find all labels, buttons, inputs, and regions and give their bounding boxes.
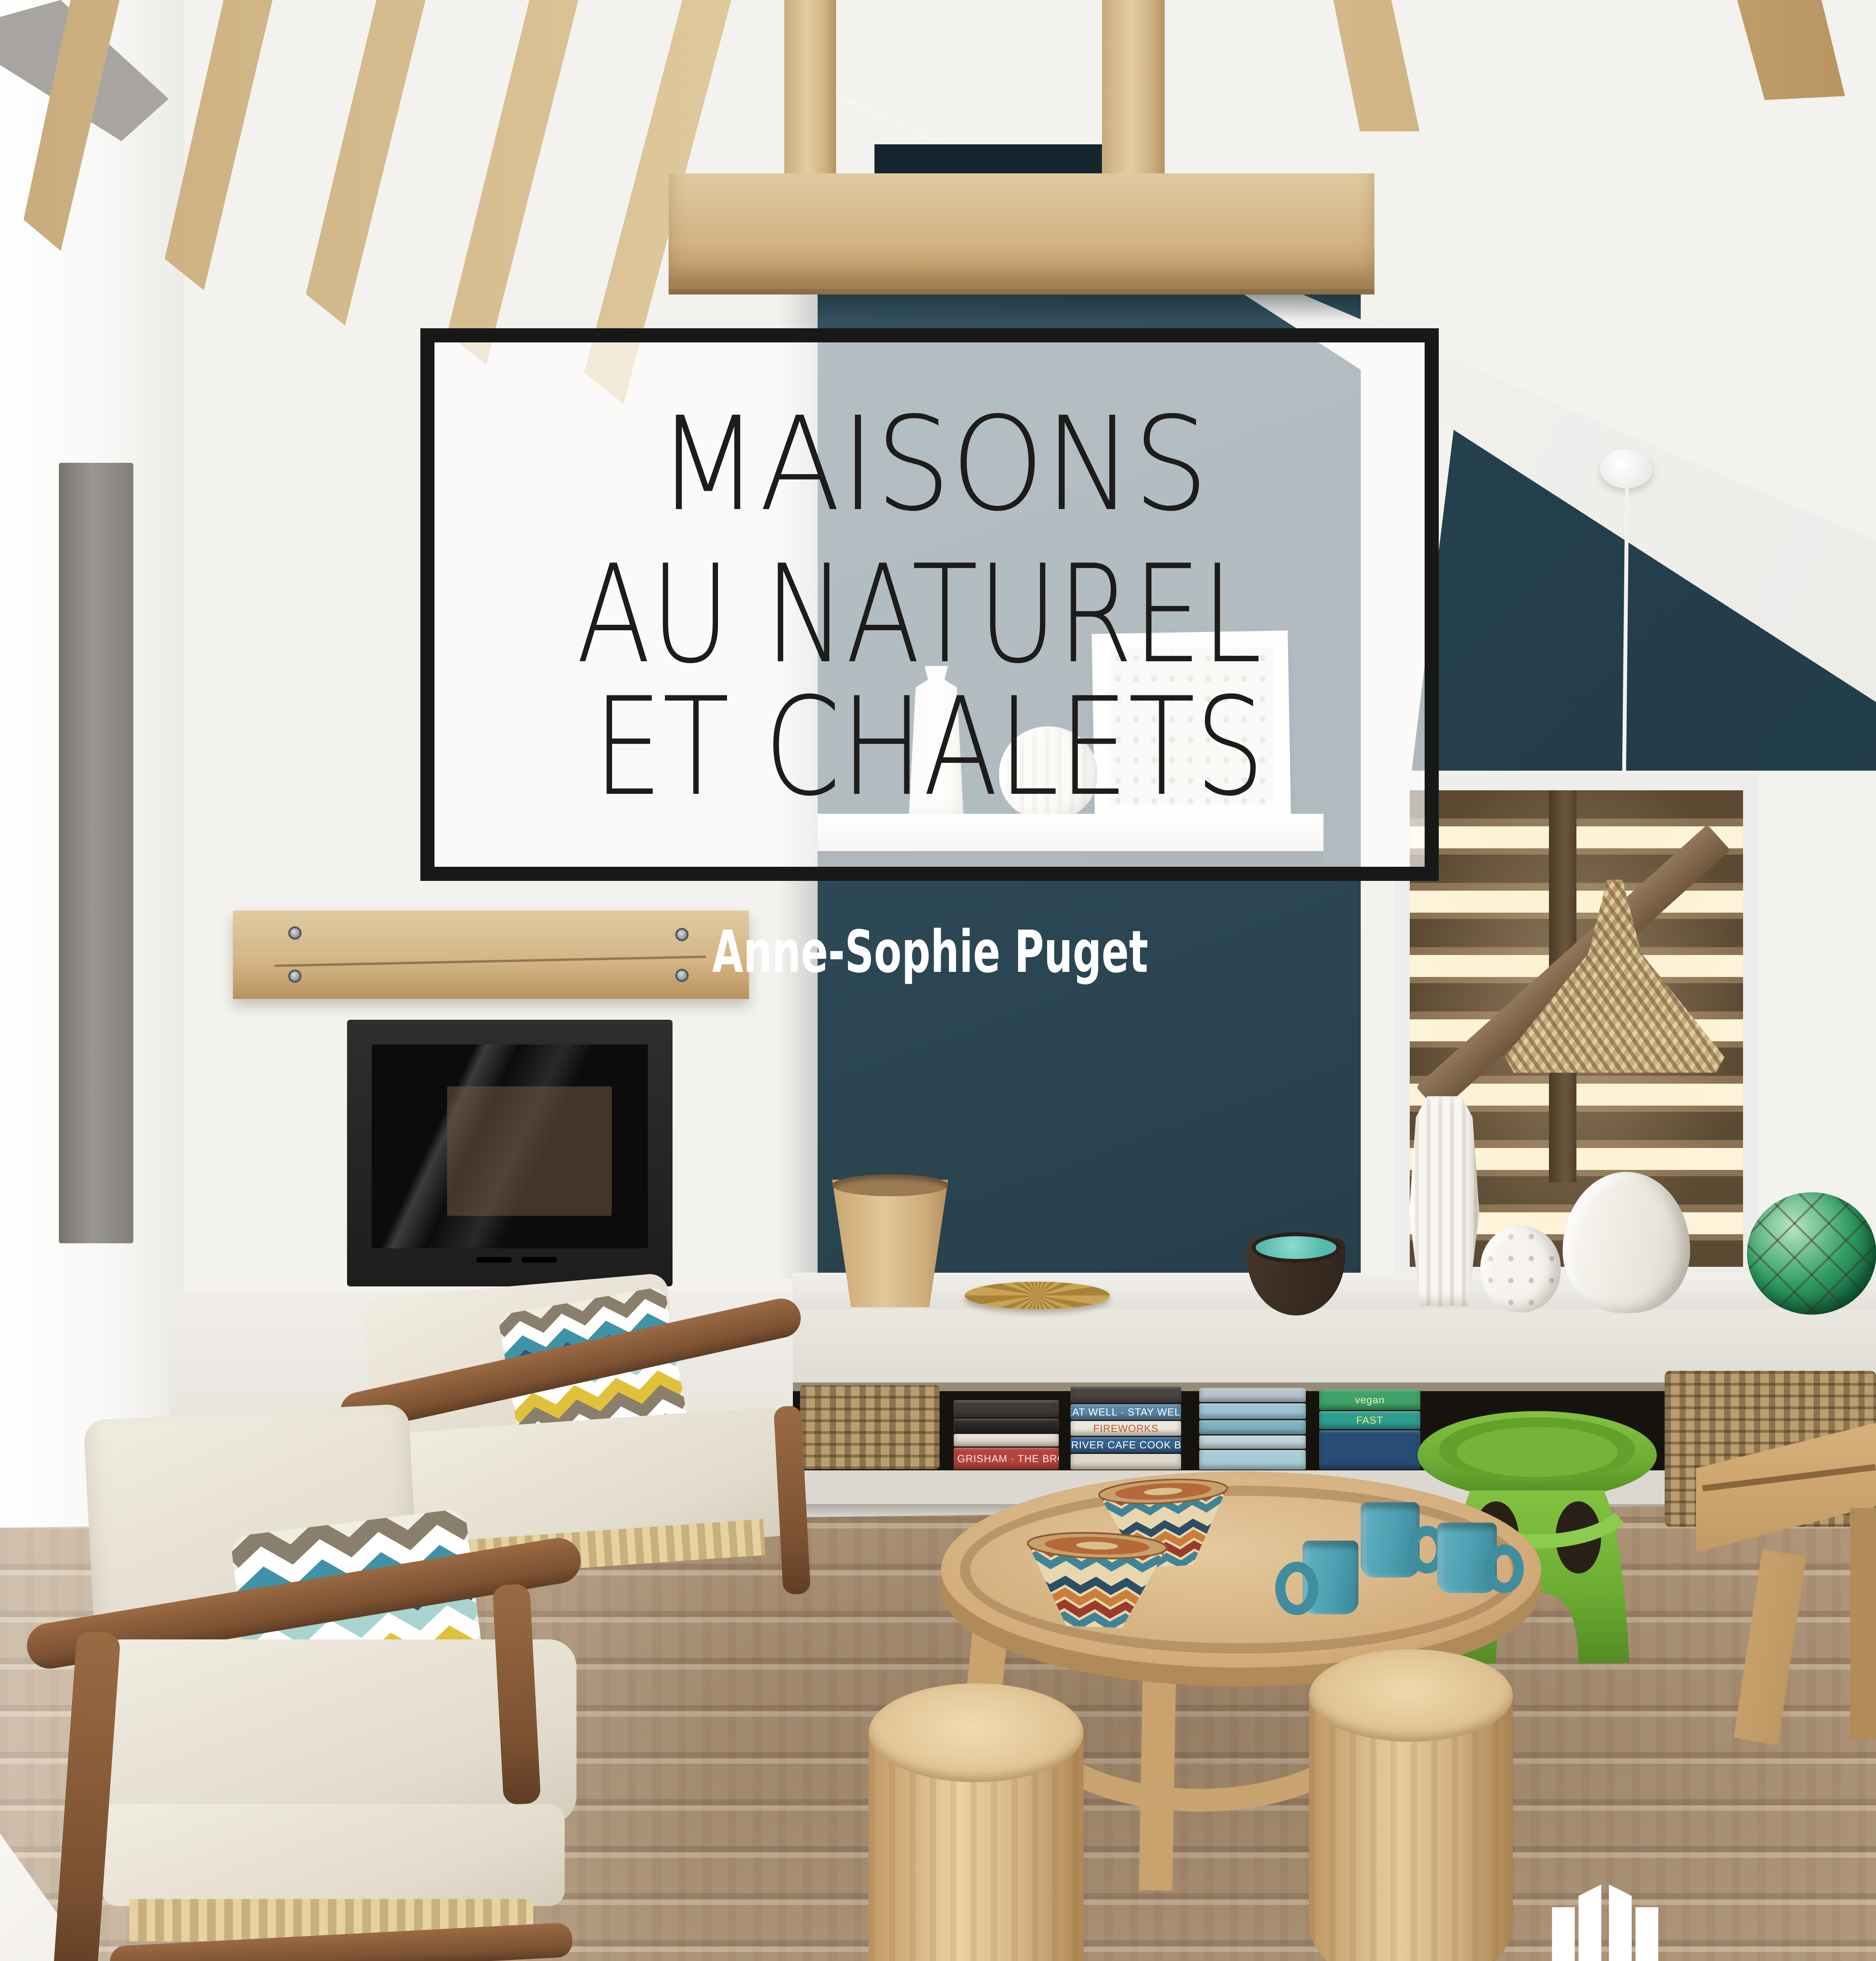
text-layer: MAISONS AU NATUREL ET CHALETS Anne-Sophi… [0, 0, 1876, 1961]
publisher-name: massin [1480, 1953, 1724, 1961]
title-line-3: ET CHALETS [593, 669, 1265, 826]
title-line-1: MAISONS [657, 389, 1209, 540]
publisher-logo-icon [1552, 1885, 1658, 1961]
author-name: Anne-Sophie Puget [712, 918, 1148, 986]
book-cover: JOHN GRISHAM · THE BROKER EAT WELL · STA… [0, 0, 1876, 1961]
